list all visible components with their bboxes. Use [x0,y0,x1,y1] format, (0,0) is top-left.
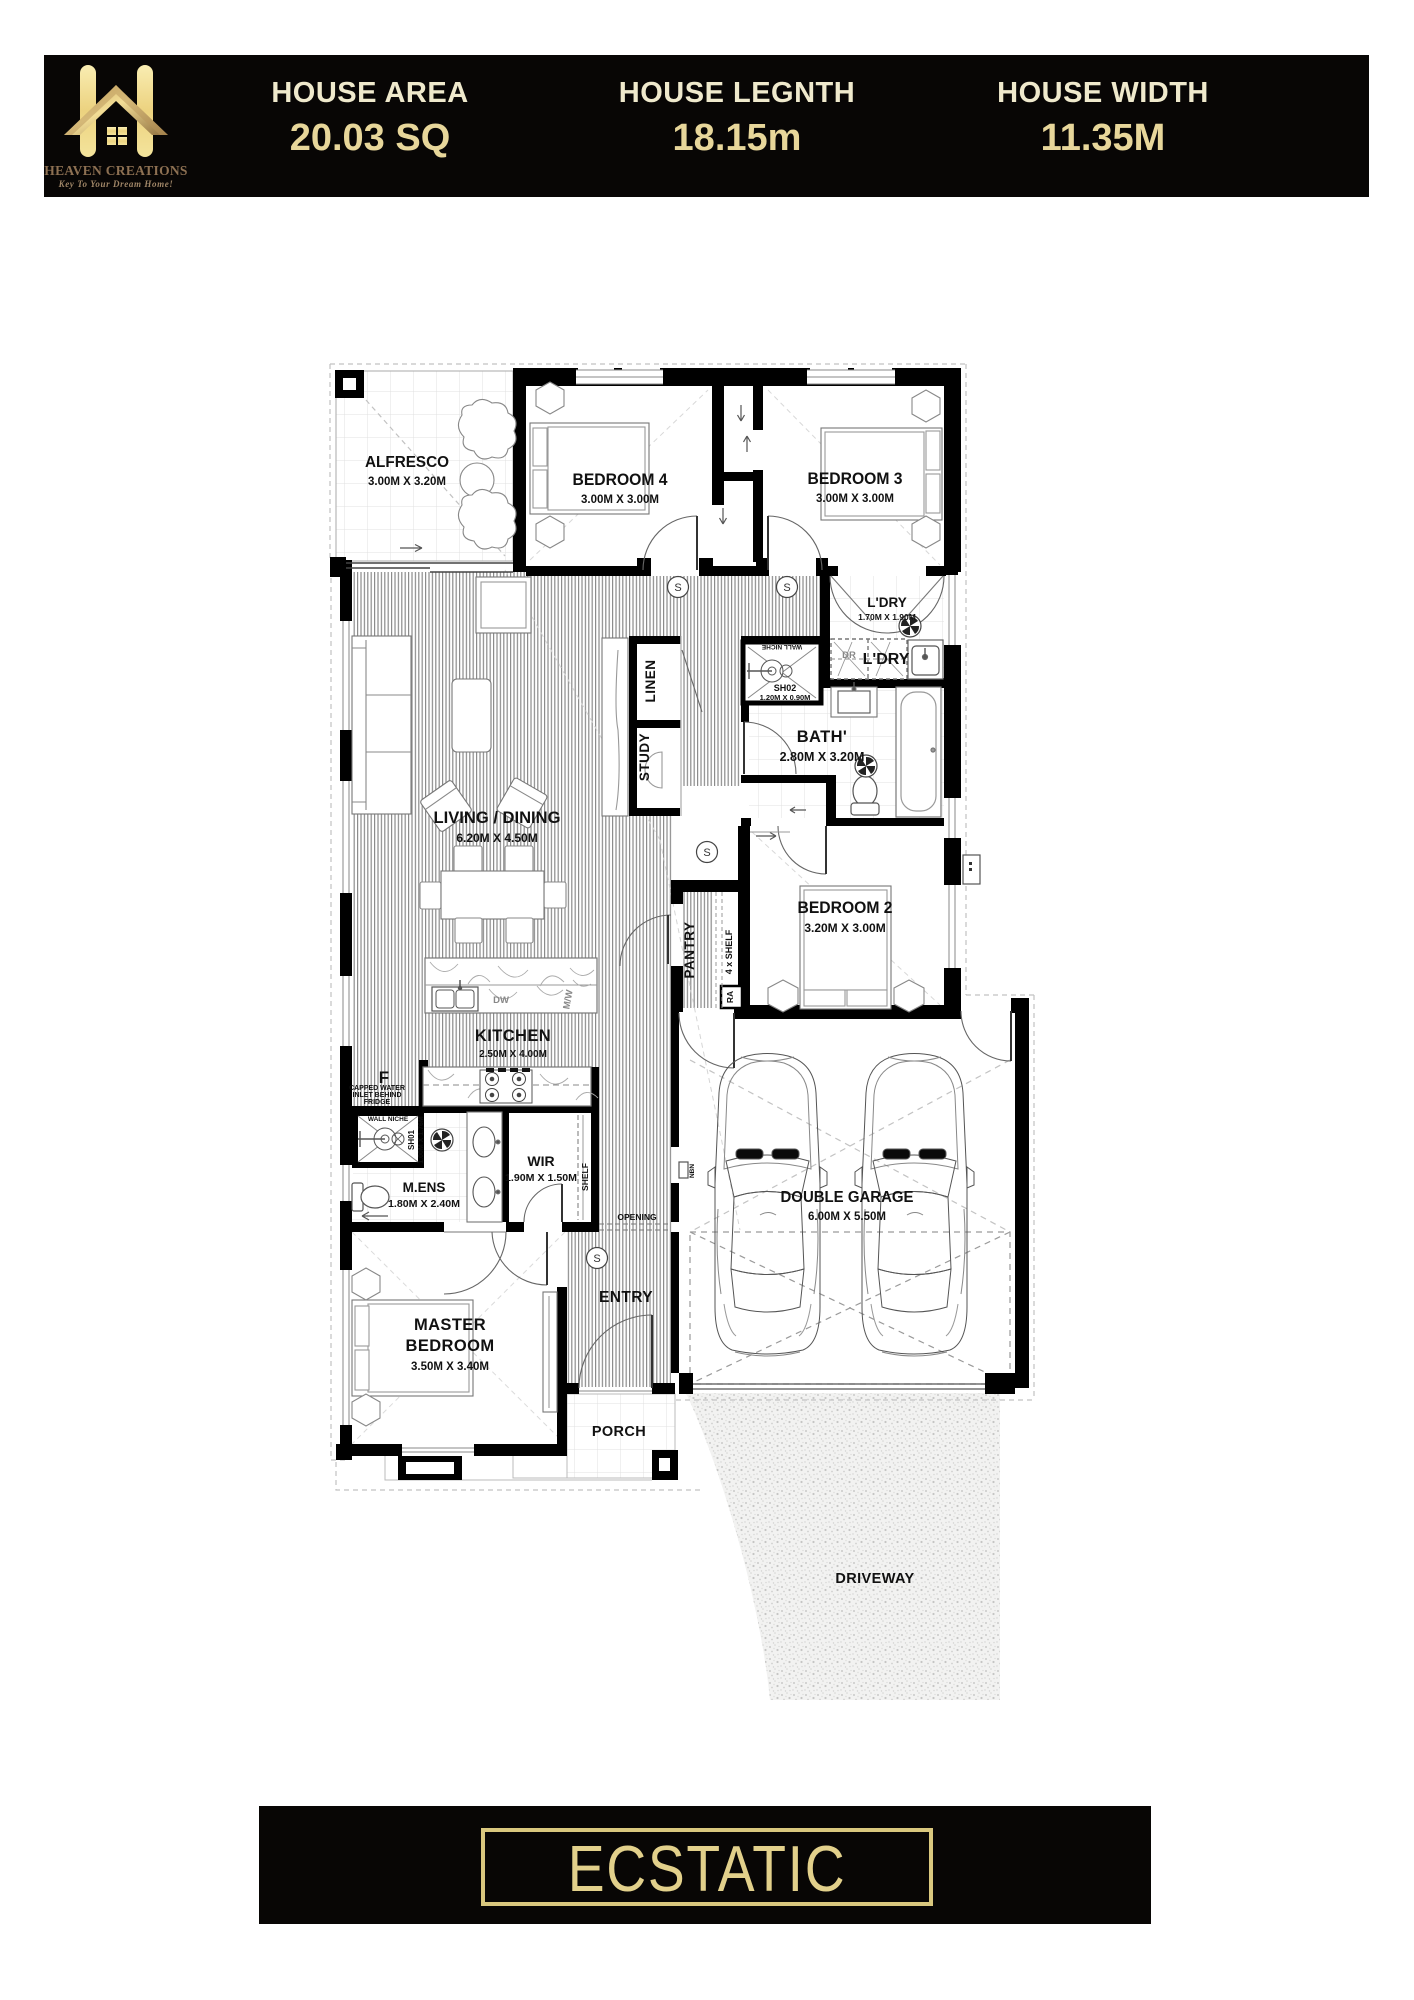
svg-text:OPENING: OPENING [617,1212,657,1222]
svg-text:BEDROOM 3: BEDROOM 3 [808,470,903,488]
svg-text:6.20M X 4.50M: 6.20M X 4.50M [456,831,537,845]
svg-text:FRIDGE: FRIDGE [364,1099,391,1106]
svg-text:DW: DW [493,995,509,1006]
svg-text:PORCH: PORCH [592,1424,646,1440]
svg-text:LIVING / DINING: LIVING / DINING [434,809,561,827]
svg-text:S: S [593,1253,600,1265]
svg-text:SH01: SH01 [407,1129,416,1150]
svg-text:MASTER: MASTER [414,1316,486,1334]
svg-text:LINEN: LINEN [643,660,658,703]
svg-text:NBN: NBN [689,1164,696,1178]
svg-text:1.20M X 0.90M: 1.20M X 0.90M [760,693,811,702]
svg-text:1.70M X 1.90M: 1.70M X 1.90M [858,612,916,622]
svg-text:ALFRESCO: ALFRESCO [365,454,449,471]
svg-text:1.00M X 1.76M: 1.00M X 1.76M [418,1116,425,1164]
svg-text:BEDROOM: BEDROOM [406,1337,495,1355]
svg-text:3.00M X 3.00M: 3.00M X 3.00M [816,493,894,505]
svg-text:3.50M X 3.40M: 3.50M X 3.40M [411,1361,489,1373]
svg-text:STUDY: STUDY [637,733,652,781]
svg-text:KITCHEN: KITCHEN [475,1027,551,1045]
svg-text:PANTRY: PANTRY [682,922,697,979]
svg-text:INLET BEHIND: INLET BEHIND [353,1092,402,1099]
svg-text:WALL NICHE: WALL NICHE [368,1116,409,1123]
svg-text:3.20M X 3.00M: 3.20M X 3.00M [804,921,885,935]
svg-text:6.00M X 5.50M: 6.00M X 5.50M [808,1211,886,1223]
svg-text:S: S [783,582,790,594]
svg-text:SH02: SH02 [774,683,797,693]
svg-text:L'DRY: L'DRY [867,595,906,610]
svg-text:1.80M X 2.40M: 1.80M X 2.40M [388,1199,460,1210]
svg-text:M.ENS: M.ENS [403,1180,446,1195]
svg-text:2.50M X 4.00M: 2.50M X 4.00M [479,1049,547,1060]
svg-text:3.00M X 3.00M: 3.00M X 3.00M [581,494,659,506]
svg-text:BEDROOM 2: BEDROOM 2 [798,899,893,917]
svg-text:WIR: WIR [527,1153,554,1169]
svg-text:SHELF: SHELF [580,1163,590,1191]
svg-text:ENTRY: ENTRY [599,1289,653,1306]
svg-text:S: S [703,847,710,859]
svg-text:BEDROOM 4: BEDROOM 4 [573,471,669,489]
svg-text:DRIVEWAY: DRIVEWAY [835,1571,914,1587]
svg-text:L'DRY: L'DRY [863,651,910,668]
svg-text:S: S [674,582,681,594]
svg-text:1.90M X 1.50M: 1.90M X 1.50M [505,1173,577,1184]
svg-text:CAPPED WATER: CAPPED WATER [349,1085,405,1092]
svg-text:3.00M X 3.20M: 3.00M X 3.20M [368,476,446,488]
svg-text:DR: DR [842,650,856,661]
svg-text:RA: RA [725,991,735,1003]
svg-text:DOUBLE GARAGE: DOUBLE GARAGE [781,1189,914,1206]
svg-text:WALL NICHE: WALL NICHE [761,643,802,650]
svg-text:BATH': BATH' [797,728,848,746]
svg-text:2.80M X 3.20M: 2.80M X 3.20M [780,750,865,764]
svg-text:4 x SHELF: 4 x SHELF [724,929,734,974]
